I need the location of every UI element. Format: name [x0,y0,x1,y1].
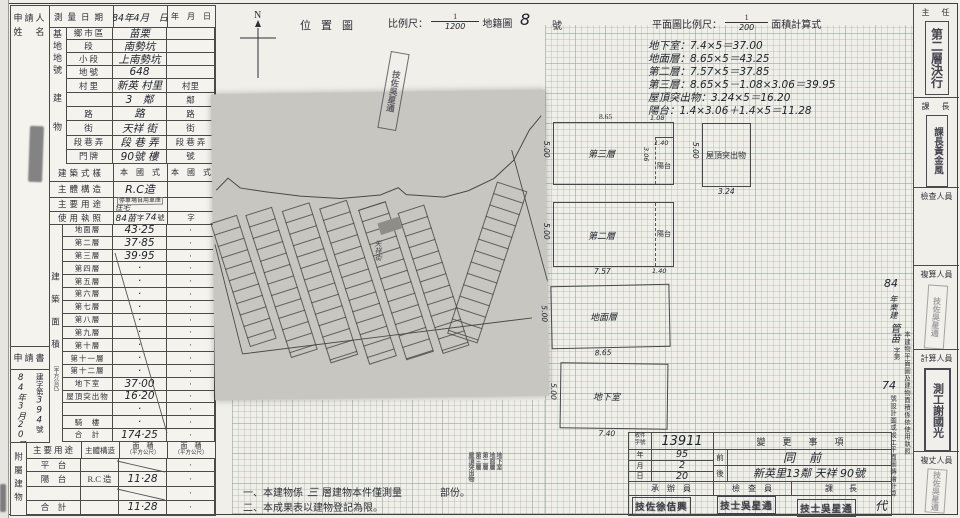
inspector-stamp-text: 技士吳星通 [717,496,776,514]
application-date: 84年3月20日 [15,373,27,443]
dim-left: 5.00 [549,383,558,400]
table-cell: · [113,416,167,429]
table-cell: 南勢坑 [113,40,167,53]
signoff-column: 主 任 第二層決行 課 長 課長黃金風 檢查人員 複算人員 技佐吳星通 計算人員… [913,3,959,514]
building-group-label: 建物 [49,79,67,164]
table-cell: · [167,472,215,486]
rechecker-stamp: 技佐吳星通 [924,284,948,349]
table-cell: · [167,403,215,416]
table-cell [167,66,215,79]
table-cell: · [167,288,215,301]
staff-label-section-chief: 課 長 [791,481,891,496]
table-cell [119,487,167,501]
table-cell: 第三層：8.65×5－1.08×3.06＝39.95 [648,79,835,92]
signoff-label-resurveyor: 複丈人員 [914,455,959,466]
table-cell: · [167,301,215,314]
table-cell: 11·28 [119,472,167,486]
table-cell: · [167,250,215,263]
survey-date-label: 測量日期 [49,6,114,28]
table-cell: 地下室 [63,378,113,391]
annex-area1-title: 面 積 [133,443,154,450]
plan-scale-numerator: 1 [745,14,749,22]
dim-bottom: 7.57 [594,267,611,276]
table-cell: 號 [167,150,215,164]
application-no: 建字第394號 [34,373,45,433]
calculator-stamp: 測工謝國光 [924,368,951,452]
receive-no-value: 13911 [651,433,714,450]
table-cell: · [167,224,215,237]
area-group-label: 建築面積 （平方公尺） [49,224,63,442]
table-cell: · [167,416,215,429]
dim-notch-w2: 1.40 [654,139,668,147]
table-cell: · [113,365,167,378]
table-cell: 屋頂突出物 [466,452,473,496]
table-cell: · [167,391,215,404]
application-no-prefix: 建字第 [35,373,44,396]
plan-scale-fraction: 1 200 [725,14,768,32]
street-label: 天祥街 [373,240,383,261]
table-cell: R.C 造 [81,472,119,486]
table-cell: 37·85 [113,237,167,250]
table-cell [63,403,113,416]
table-cell: 門牌 [67,150,113,164]
figure-label: 屋頂突出物 [706,150,746,161]
table-cell: 地下室：7.4×5＝37.00 [648,40,835,53]
use-stamp-text: 停車場自用車庫 [117,197,163,205]
license-row-v2: 字 [167,211,216,225]
figure-label: 第二層 [588,229,615,242]
site-group-label: 基地地號 [49,27,67,79]
table-cell [27,487,81,501]
table-cell: 段巷弄 [67,136,113,150]
annex-area2-title: 面 積 [181,443,202,450]
survey-date-value2: 年 月 日 [167,6,216,28]
signoff-label-rechecker: 複算人員 [914,269,959,280]
change-record-table: 收件 字號 13911 年 95 月 2 日 20 變 更 事 項 前 同前 後… [628,432,892,516]
table-cell: 第八層 [63,314,113,327]
table-cell: 第三層 [473,452,480,496]
survey-date-value: 84年4月 日 [113,6,168,28]
measured-floors-stamp: 地下室地面層第二層第三層屋頂突出物 [466,452,501,496]
dim-left: 5.00 [691,142,700,159]
figure-label: 地面層 [590,310,617,324]
receive-no-label: 收件 字號 [629,433,652,450]
map-sheet-number-suffix: 號 [552,17,562,32]
note-hand-no: 74 [882,379,896,392]
table-cell: 段 巷 弄 [113,136,167,150]
table-cell: · [167,365,215,378]
table-cell: 16·20 [113,391,167,404]
table-cell: 地號 [67,66,113,79]
illegible-stamp [28,126,44,182]
handler-stamp: 技佐徐佶興 [632,497,691,515]
note1-hand-floors: 三 [307,484,318,500]
staff-label-handler: 承 辦 員 [629,481,714,496]
table-cell: · [167,314,215,327]
table-cell: · [113,288,167,301]
figure-second-floor: 5.00 第二層 陽台 7.57 1.40 [553,202,674,267]
building-rows: 村里新英 村里村里3 鄰鄰路路路街天祥 街街段巷弄段 巷 弄段 巷 弄門牌90號… [67,79,215,164]
page-top-rule [8,3,958,4]
table-cell: 段 [67,40,113,53]
table-cell: 路 [113,107,167,121]
table-cell: 第二層：7.57×5＝37.85 [648,66,835,79]
signoff-divider [914,97,959,98]
scale-fraction: 1 1200 [431,13,479,31]
note-line-1: 一、本建物係 三 層建物本件僅測量 部份。 [243,484,470,500]
license-hand-2: 74 [145,213,156,223]
style-row-label: 建築式樣 [49,164,114,182]
table-cell: 路 [67,107,113,121]
table-cell: 小段 [67,53,113,66]
floor-area-rows: 地面層43·25·第二層37·85·第三層39·95·第四層··第五層··第六層… [63,224,215,442]
table-cell: 合 計 [27,501,81,515]
table-cell: 合 計 [63,429,113,442]
table-cell: · [167,487,215,501]
figure-third-floor: 8.65 5.00 第三層 1.08 1.40 3.06 陽台 [553,122,674,185]
annex-header-use: 主要用途 [27,442,82,459]
survey-form-table: 申請人 姓 名 測量日期 84年4月 日 年 月 日 基地地號 鄉市區苗栗段南勢… [10,5,216,516]
figure-label: 第三層 [588,147,615,160]
signoff-label-section-chief: 課 長 [914,101,959,112]
applicant-label-line1: 申請人 [13,11,46,25]
applicant-label-line2: 姓 名 [13,25,46,39]
table-cell: 第四層 [63,262,113,275]
table-cell [67,93,113,107]
table-cell: 3 鄰 [113,93,167,107]
balcony-label: 陽台 [657,161,671,171]
table-cell [167,40,215,53]
survey-result-sheet: 申請人 姓 名 測量日期 84年4月 日 年 月 日 基地地號 鄉市區苗栗段南勢… [0,0,960,518]
table-cell: 第十二層 [63,365,113,378]
table-cell: · [167,262,215,275]
balcony-divider [655,203,656,266]
style-row-v1: 本 國 式 [113,164,168,182]
table-cell: · [113,403,167,416]
table-cell: · [167,501,215,515]
location-scale: 比例尺： 1 1200 地籍圖 [388,13,512,31]
table-cell: 第十層 [63,339,113,352]
table-cell: 上南勢坑 [113,53,167,66]
table-cell [81,487,119,501]
table-cell [81,501,119,515]
balcony-label: 陽台 [657,229,671,239]
annex-area2-unit: （平方公尺） [174,450,207,457]
table-cell: 39·95 [113,250,167,263]
table-cell: 路 [167,107,215,121]
acting-mark: 代 [875,497,887,514]
plan-scale-denominator: 200 [725,22,768,32]
table-cell: 37·00 [113,378,167,391]
table-cell: 地面層：8.65×5＝43.25 [648,53,835,66]
figure-label: 地下室 [593,390,620,403]
use-row-v2 [167,197,216,212]
table-cell: 第十一層 [63,352,113,365]
signoff-label-calculator: 計算人員 [914,353,959,364]
inspector-stamp: 技士吳星通 [717,496,776,514]
table-cell: 11·28 [119,501,167,515]
table-cell: · [113,339,167,352]
table-cell: 街 [67,121,113,135]
edge-smudge [0,484,6,512]
change-after-label: 後 [713,465,728,482]
table-cell: · [113,314,167,327]
table-cell [81,458,119,472]
table-cell: · [167,327,215,340]
annex-header-structure: 主體構造 [81,442,120,459]
dim-balcony-w: 1.40 [652,267,666,275]
table-cell: 第五層 [63,275,113,288]
scale-suffix: 地籍圖 [482,15,512,30]
section-chief-review-stamp: 技士吳星通 [797,499,856,517]
plan-scale-suffix: 面積計算式 [771,16,821,31]
change-after-value: 新英里13鄰 天祥 90號 [727,465,891,482]
receive-label-line1: 收件 [629,433,651,440]
use-row-label: 主要用途 [49,197,114,212]
signoff-divider [914,349,959,350]
figure-roof-structure: 5.00 屋頂突出物 3.24 [702,123,751,187]
table-cell: 街 [167,121,215,135]
dim-top: 8.65 [599,112,612,121]
table-cell: 苗栗 [113,27,167,40]
table-cell: 648 [113,66,167,79]
application-no-suffix: 號 [35,426,44,434]
table-cell: · [167,237,215,250]
license-row-v1: 84苗 字 74 號 [113,211,168,225]
signoff-divider [914,451,959,452]
signoff-label-chief: 主 任 [914,7,959,18]
note-hand-word: 管苗 [886,323,901,343]
table-cell: · [167,458,215,472]
table-cell: · [167,275,215,288]
table-cell: · [113,275,167,288]
table-cell [167,27,215,40]
style-row-v2: 本 國 式 [167,164,216,182]
scale-denominator: 1200 [431,21,479,31]
decision-stamp: 第二層決行 [925,21,949,95]
north-arrow-icon: N [236,6,282,80]
signoff-divider [914,265,959,266]
table-cell: 43·25 [113,224,167,237]
table-cell: 地面層 [487,452,494,496]
table-cell: 地下室 [494,452,501,496]
dim-left: 5.00 [542,141,551,158]
table-cell: 屋頂突出物：3.24×5＝16.20 [648,92,835,105]
section-chief-stamp: 課長黃金風 [926,115,948,187]
signoff-divider [914,187,959,188]
north-letter: N [254,10,261,21]
notch-line [655,137,673,138]
table-cell: 屋頂突出物 [63,391,113,404]
staff-label-inspector: 檢 查 員 [713,481,792,496]
table-cell: 第三層 [63,250,113,263]
site-rows: 鄉市區苗栗段南勢坑小段上南勢坑地號648 [67,27,215,79]
application-number-cell: 84年3月20日 建字第394號 [11,369,50,443]
change-items-header: 變 更 事 項 [713,433,891,450]
table-cell: 陽 台 [27,472,81,486]
table-cell: · [167,378,215,391]
table-cell: 第七層 [63,301,113,314]
area-group-text: 建築面積 [50,272,62,362]
note-prefix: 字第 [890,347,900,360]
table-cell: 地面層 [63,224,113,237]
change-before-label: 前 [713,449,728,466]
note1-middle: 層建物本件僅測量 [322,484,402,499]
change-before-value: 同前 [727,449,891,466]
table-cell: 新英 村里 [113,79,167,93]
annex-area1-unit: （平方公尺） [126,450,159,457]
table-cell: 鄉市區 [67,27,113,40]
license-row-label: 使用執照 [49,211,114,225]
annex-header-area2: 面 積 （平方公尺） [167,442,216,459]
location-map-title: 位置圖 [300,17,363,33]
annex-header-area1: 面 積 （平方公尺） [119,442,168,459]
area-unit-text: （平方公尺） [52,362,60,395]
table-cell: · [113,262,167,275]
table-cell: · [113,301,167,314]
map-sheet-number: 8 [520,10,530,29]
annex-group-label: 附屬建物 [11,442,27,515]
page-left-edge [0,0,9,518]
dim-left: 5.00 [542,223,551,240]
table-cell: 陽台：1.4×3.06＋1.4×5＝11.28 [648,105,835,118]
structure-value: R.C造 [125,181,155,198]
plan-scale-prefix: 平面圖比例尺： [652,16,722,31]
structure-row-label: 主體構造 [49,181,114,198]
table-cell: 174·25 [113,429,167,442]
table-cell: · [167,429,215,442]
dim-notch-w: 1.08 [650,114,664,122]
table-cell [167,53,215,66]
application-no-value: 394 [34,396,44,426]
table-cell: 第九層 [63,327,113,340]
table-cell: 第二層 [480,452,487,496]
handler-stamp-text: 技佐徐佶興 [632,497,691,515]
use-row-v1: 停車場自用車庫 住宅 [113,197,168,212]
scale-prefix: 比例尺： [388,15,428,30]
license-printed-1: 字 [137,213,144,223]
table-cell: · [113,327,167,340]
table-cell: 鄰 [167,93,215,107]
table-cell: 平 台 [27,458,81,472]
license-printed-2: 號 [157,213,164,223]
signoff-label-inspector: 檢查人員 [914,191,959,202]
license-hand-1: 84苗 [116,211,136,224]
table-cell: · [167,352,215,365]
plan-scale-header: 平面圖比例尺： 1 200 面積計算式 [652,14,821,32]
table-cell: · [167,339,215,352]
dim-bottom: 8.65 [595,348,612,357]
note-printed-right: 本建物平面圖及建物面積係依使用執照 [902,331,911,455]
structure-row-v1: R.C造 [113,181,168,198]
note-hand-year: 84 [884,277,898,290]
table-cell: 天祥 街 [113,121,167,135]
resurveyor-stamp: 技佐吳星通 [924,468,947,513]
figure-ground-floor: 5.00 地面層 8.65 [550,284,670,349]
table-cell: 90號 樓 [113,150,167,164]
table-cell: 第六層 [63,288,113,301]
table-cell: 段 巷 弄 [167,136,215,150]
receive-label-line2: 字號 [629,440,651,447]
table-cell: 第二層 [63,237,113,250]
table-cell [119,458,167,472]
area-calculations: 地下室：7.4×5＝37.00地面層：8.65×5＝43.25第二層：7.57×… [648,40,835,118]
dim-left: 5.00 [540,305,549,322]
note1-prefix: 一、本建物係 [243,484,303,499]
table-cell: 村里 [167,79,215,93]
annex-rows: 平 台·陽 台R.C 造11·28··合 計11·28· [27,458,215,515]
structure-row-v2 [167,181,216,198]
figure-basement: 5.00 地下室 7.40 [560,362,669,430]
dim-bottom: 7.40 [598,429,615,438]
table-cell: 騎 樓 [63,416,113,429]
scale-numerator: 1 [453,13,457,21]
cadastral-map-overlay: 天祥街 [211,90,549,401]
table-cell: 村里 [67,79,113,93]
dim-notch-h: 3.06 [642,147,650,161]
section-chief-review-stamp-text: 技士吳星通 [797,499,856,517]
note-line-2: 二、本成果表以建物登記為限。 [243,499,383,514]
dim-bottom: 3.24 [718,187,735,196]
table-cell: · [113,352,167,365]
application-label-cell: 申請書 [11,346,50,370]
note-hand-mid: 年栗建 [888,295,899,319]
